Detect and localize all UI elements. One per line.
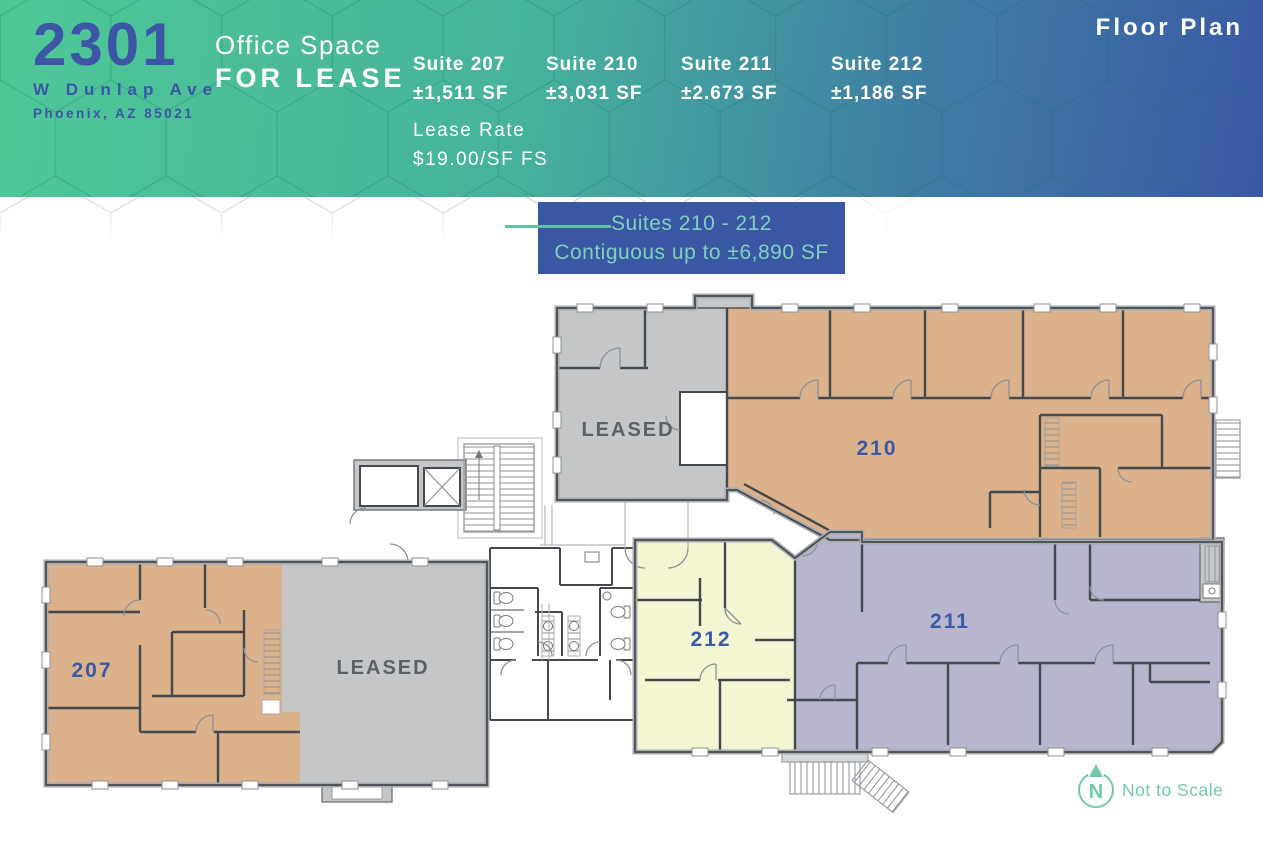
suite-210-area xyxy=(727,308,1213,540)
bottom-stair xyxy=(790,762,860,794)
suite-211-label: 211 xyxy=(930,610,970,633)
floor-plan: 210 211 212 207 LEASED LEASED N Not to S… xyxy=(0,0,1263,841)
compass-letter: N xyxy=(1089,781,1103,803)
leased-top-inner-room xyxy=(680,392,727,465)
right-stair xyxy=(1216,420,1240,478)
leased-bottom-label: LEASED xyxy=(336,657,429,679)
compass-north-icon: N xyxy=(1079,764,1113,807)
leased-top-label: LEASED xyxy=(581,419,674,441)
suite-207-label: 207 xyxy=(71,659,112,682)
flyer-page: 2301 W Dunlap Ave Phoenix, AZ 85021 Offi… xyxy=(0,0,1263,841)
suite-210-label: 210 xyxy=(856,437,897,460)
restroom-core xyxy=(490,548,634,720)
suite-212-label: 212 xyxy=(690,628,731,651)
not-to-scale-label: Not to Scale xyxy=(1122,780,1223,800)
callout-leader-line xyxy=(505,225,611,228)
suite-211-area xyxy=(795,532,1222,752)
storage-room xyxy=(360,466,418,506)
